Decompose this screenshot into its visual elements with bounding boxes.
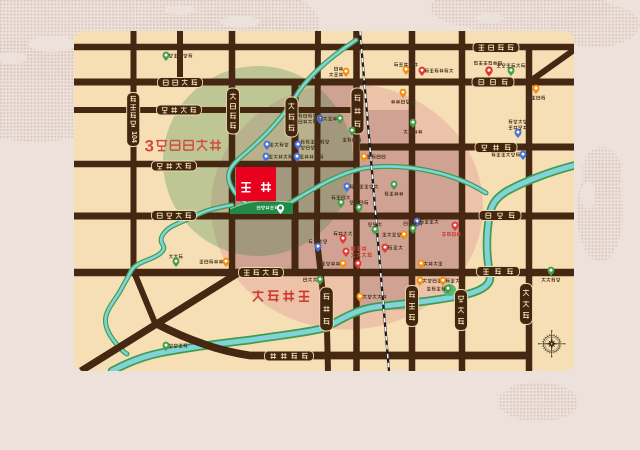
svg-text:104: 104 <box>130 131 137 143</box>
svg-text:3: 3 <box>145 137 154 156</box>
